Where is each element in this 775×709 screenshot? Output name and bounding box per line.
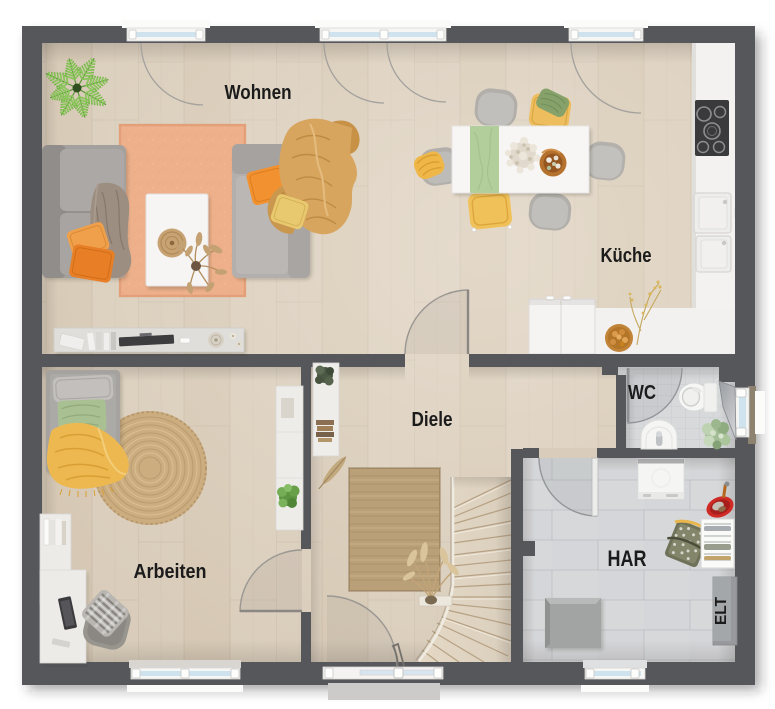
svg-text:Küche: Küche [601, 245, 652, 267]
svg-text:ELT: ELT [713, 597, 730, 625]
svg-text:Diele: Diele [412, 409, 453, 431]
svg-text:Arbeiten: Arbeiten [134, 561, 207, 583]
svg-text:HAR: HAR [608, 546, 647, 571]
svg-text:WC: WC [628, 382, 656, 404]
svg-text:Wohnen: Wohnen [225, 82, 292, 104]
